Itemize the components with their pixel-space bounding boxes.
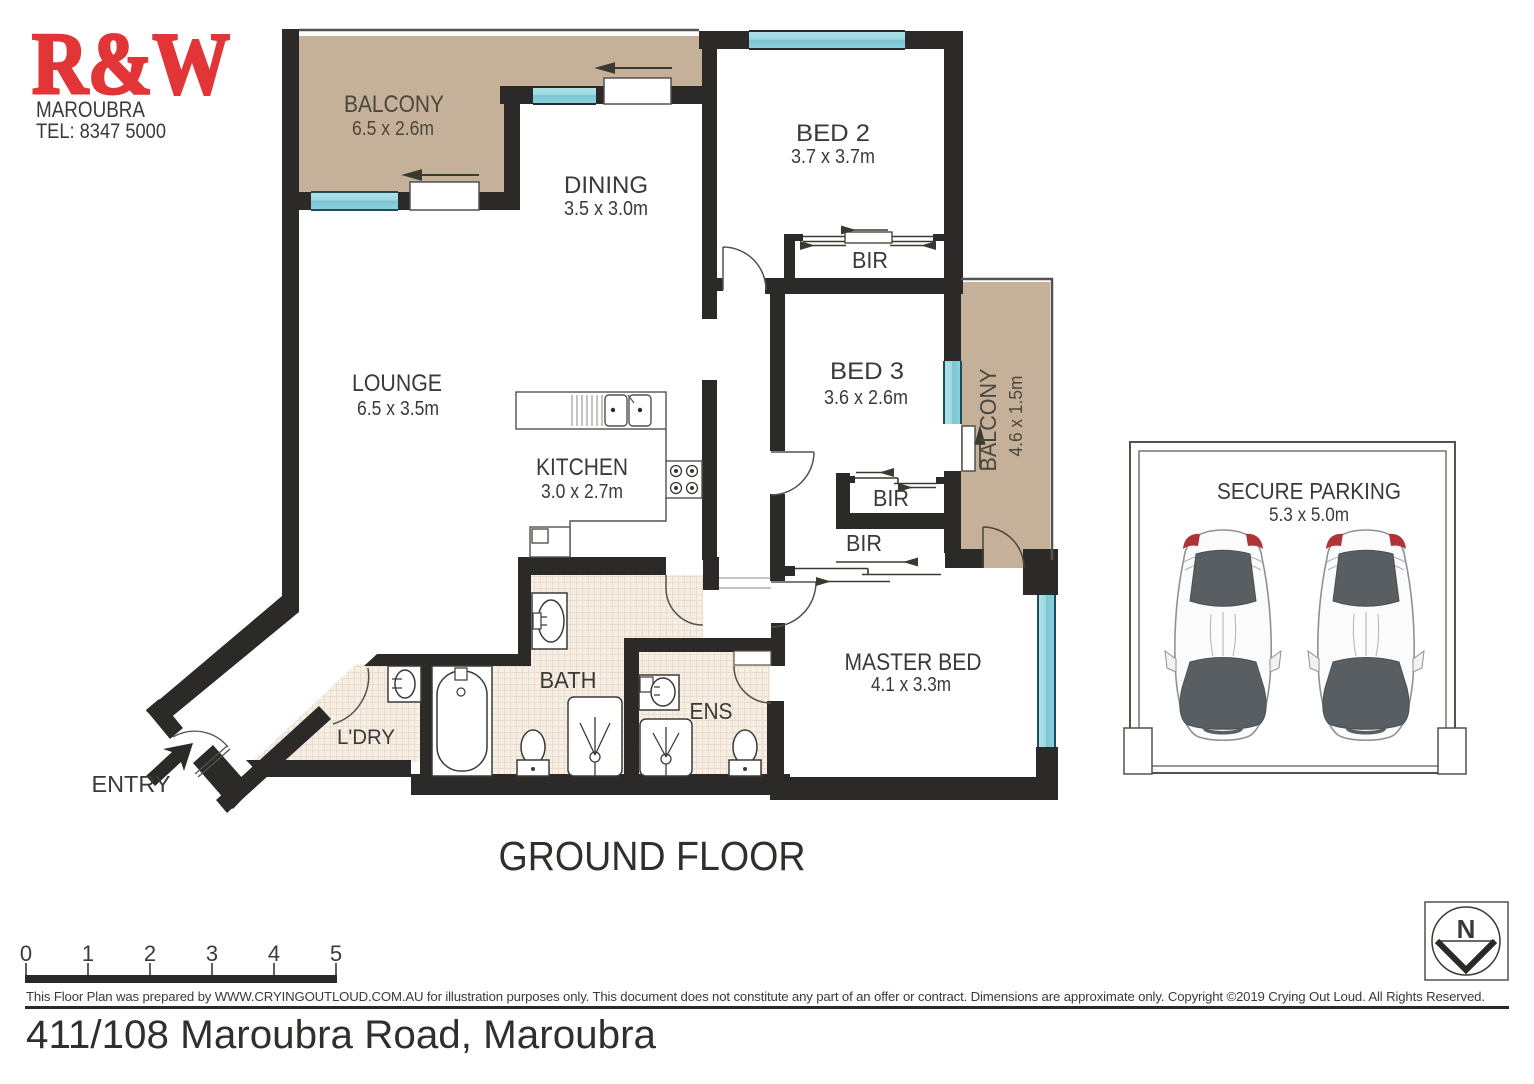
svg-text:BIR: BIR bbox=[873, 485, 909, 511]
svg-text:4.6 x 1.5m: 4.6 x 1.5m bbox=[1005, 376, 1026, 457]
svg-text:BALCONY: BALCONY bbox=[344, 91, 444, 118]
svg-text:BIR: BIR bbox=[846, 530, 882, 556]
svg-text:BED 3: BED 3 bbox=[830, 358, 904, 385]
svg-text:4.1 x 3.3m: 4.1 x 3.3m bbox=[871, 674, 951, 696]
svg-text:3.7 x 3.7m: 3.7 x 3.7m bbox=[791, 146, 875, 168]
svg-text:3.5 x 3.0m: 3.5 x 3.0m bbox=[564, 198, 648, 220]
svg-text:SECURE PARKING: SECURE PARKING bbox=[1217, 478, 1401, 504]
svg-text:BED 2: BED 2 bbox=[796, 120, 870, 147]
svg-text:BALCONY: BALCONY bbox=[975, 369, 1001, 472]
svg-text:5: 5 bbox=[330, 941, 342, 966]
svg-text:3.0 x 2.7m: 3.0 x 2.7m bbox=[541, 481, 623, 503]
svg-text:1: 1 bbox=[82, 941, 94, 966]
svg-text:L'DRY: L'DRY bbox=[337, 726, 395, 749]
svg-text:KITCHEN: KITCHEN bbox=[536, 454, 628, 481]
svg-text:MASTER BED: MASTER BED bbox=[845, 649, 982, 676]
svg-text:ENTRY: ENTRY bbox=[92, 771, 171, 797]
svg-text:LOUNGE: LOUNGE bbox=[352, 370, 442, 397]
svg-text:DINING: DINING bbox=[564, 172, 648, 199]
svg-text:MAROUBRA: MAROUBRA bbox=[36, 97, 145, 122]
svg-text:GROUND FLOOR: GROUND FLOOR bbox=[499, 833, 806, 879]
svg-text:2: 2 bbox=[144, 941, 156, 966]
svg-text:6.5 x 2.6m: 6.5 x 2.6m bbox=[352, 118, 434, 140]
svg-text:0: 0 bbox=[20, 941, 32, 966]
svg-text:411/108 Maroubra Road, Maroubr: 411/108 Maroubra Road, Maroubra bbox=[26, 1013, 657, 1057]
svg-text:5.3 x 5.0m: 5.3 x 5.0m bbox=[1269, 505, 1349, 526]
svg-text:This Floor Plan was prepared b: This Floor Plan was prepared by WWW.CRYI… bbox=[26, 989, 1485, 1004]
svg-text:BIR: BIR bbox=[852, 247, 888, 273]
svg-text:ENS: ENS bbox=[690, 698, 733, 724]
svg-text:TEL: 8347 5000: TEL: 8347 5000 bbox=[36, 120, 166, 143]
svg-text:3.6 x 2.6m: 3.6 x 2.6m bbox=[824, 387, 908, 409]
svg-text:BATH: BATH bbox=[540, 667, 597, 693]
svg-text:N: N bbox=[1457, 914, 1476, 944]
svg-text:3: 3 bbox=[206, 941, 218, 966]
svg-text:6.5 x 3.5m: 6.5 x 3.5m bbox=[357, 398, 439, 420]
svg-text:4: 4 bbox=[268, 941, 280, 966]
